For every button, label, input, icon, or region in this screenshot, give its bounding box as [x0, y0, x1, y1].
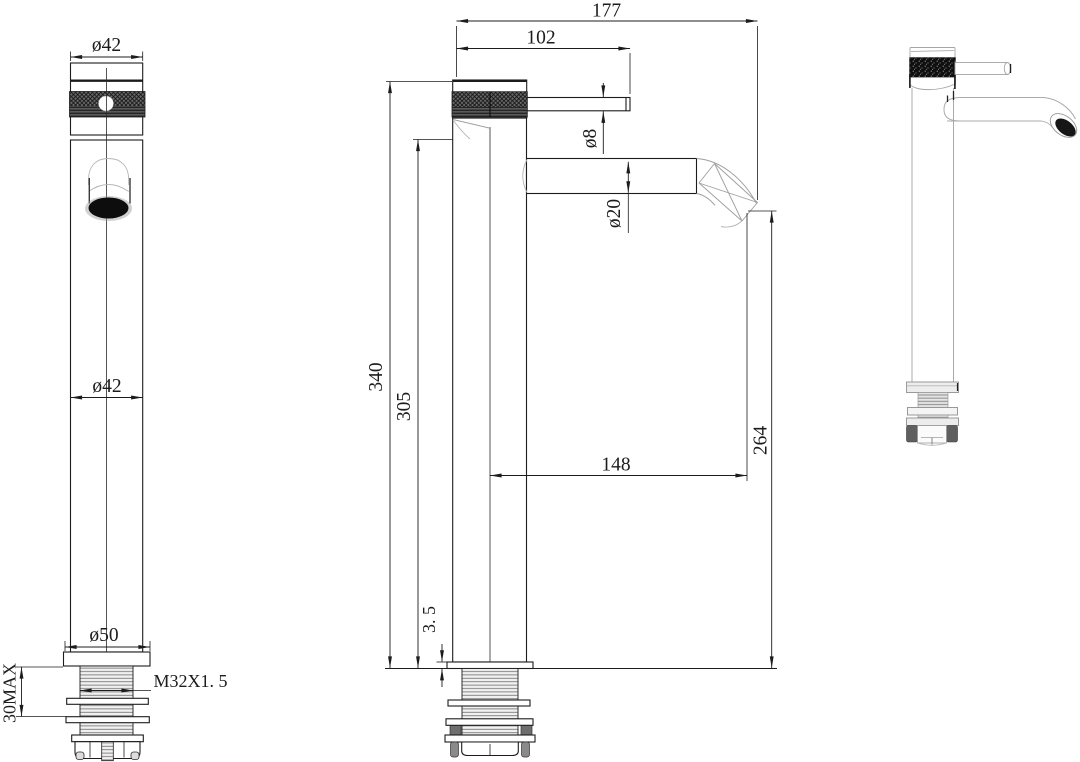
front-washer-1: [67, 698, 149, 704]
render-spout: [944, 91, 1080, 142]
side-lock-plate: [445, 735, 535, 742]
dim-text-overall-reach: 177: [592, 1, 622, 22]
dim-spout-reach: 148: [490, 213, 747, 481]
faucet-dimension-drawing: ø42 ø42 ø50 M32X1. 5 30MAX: [0, 0, 1080, 762]
render-base: [907, 382, 959, 445]
dim-text-outlet-height: 264: [750, 426, 771, 456]
render-handle: [910, 48, 956, 90]
dim-text-handle-diameter: ø42: [92, 35, 121, 56]
render-lever: [955, 63, 1011, 75]
side-washer-2: [446, 719, 533, 726]
front-lock-plate: [72, 735, 144, 742]
dim-text-lever-rod-diameter: ø8: [580, 129, 601, 149]
front-view: ø42 ø42 ø50 M32X1. 5 30MAX: [0, 35, 228, 761]
front-threaded-stub: [102, 742, 114, 761]
front-outlet-opening: [89, 198, 129, 219]
side-view: 177 102 ø8 ø20 340: [366, 1, 777, 758]
front-washer-2: [66, 717, 149, 723]
dim-text-body-height: 305: [394, 392, 415, 421]
dim-text-overall-height: 340: [366, 362, 387, 391]
side-base-flange: [447, 662, 533, 669]
render-body: [912, 88, 954, 384]
side-spout-elbow: [697, 159, 758, 228]
dim-max-mount-thickness: 30MAX: [0, 663, 67, 723]
side-spout-tube: [527, 159, 697, 194]
render-view: [907, 48, 1080, 446]
dim-text-thread-spec: M32X1. 5: [154, 671, 228, 691]
dim-text-base-diameter: ø50: [89, 625, 118, 646]
dim-text-flange-thickness: 3. 5: [419, 606, 439, 633]
side-lever-rod: [527, 98, 630, 111]
side-handle-knurl-band: [452, 92, 527, 117]
render-flange: [907, 382, 959, 393]
dim-flange-thickness: 3. 5: [419, 606, 448, 687]
dim-outlet-height: 264: [748, 211, 777, 668]
dim-text-lever-length: 102: [526, 28, 555, 49]
dim-text-body-diameter: ø42: [92, 376, 121, 397]
dim-overall-height: 340: [366, 82, 452, 669]
front-base-flange: [64, 652, 151, 666]
render-knurl-band: [910, 58, 956, 78]
dim-text-max-mount-thickness: 30MAX: [0, 663, 20, 723]
dim-body-height: 305: [394, 140, 453, 669]
render-washer-1: [908, 408, 958, 416]
dim-handle-diameter: ø42: [71, 35, 143, 61]
render-washer-2: [907, 418, 959, 426]
technical-drawing-canvas: ø42 ø42 ø50 M32X1. 5 30MAX: [0, 0, 1080, 762]
front-lever-hole: [98, 96, 113, 111]
dim-text-spout-diameter: ø20: [604, 199, 625, 228]
side-washer-1: [448, 700, 530, 706]
dim-text-spout-reach: 148: [601, 455, 630, 476]
dim-lever-rod-diameter: ø8: [580, 83, 603, 154]
